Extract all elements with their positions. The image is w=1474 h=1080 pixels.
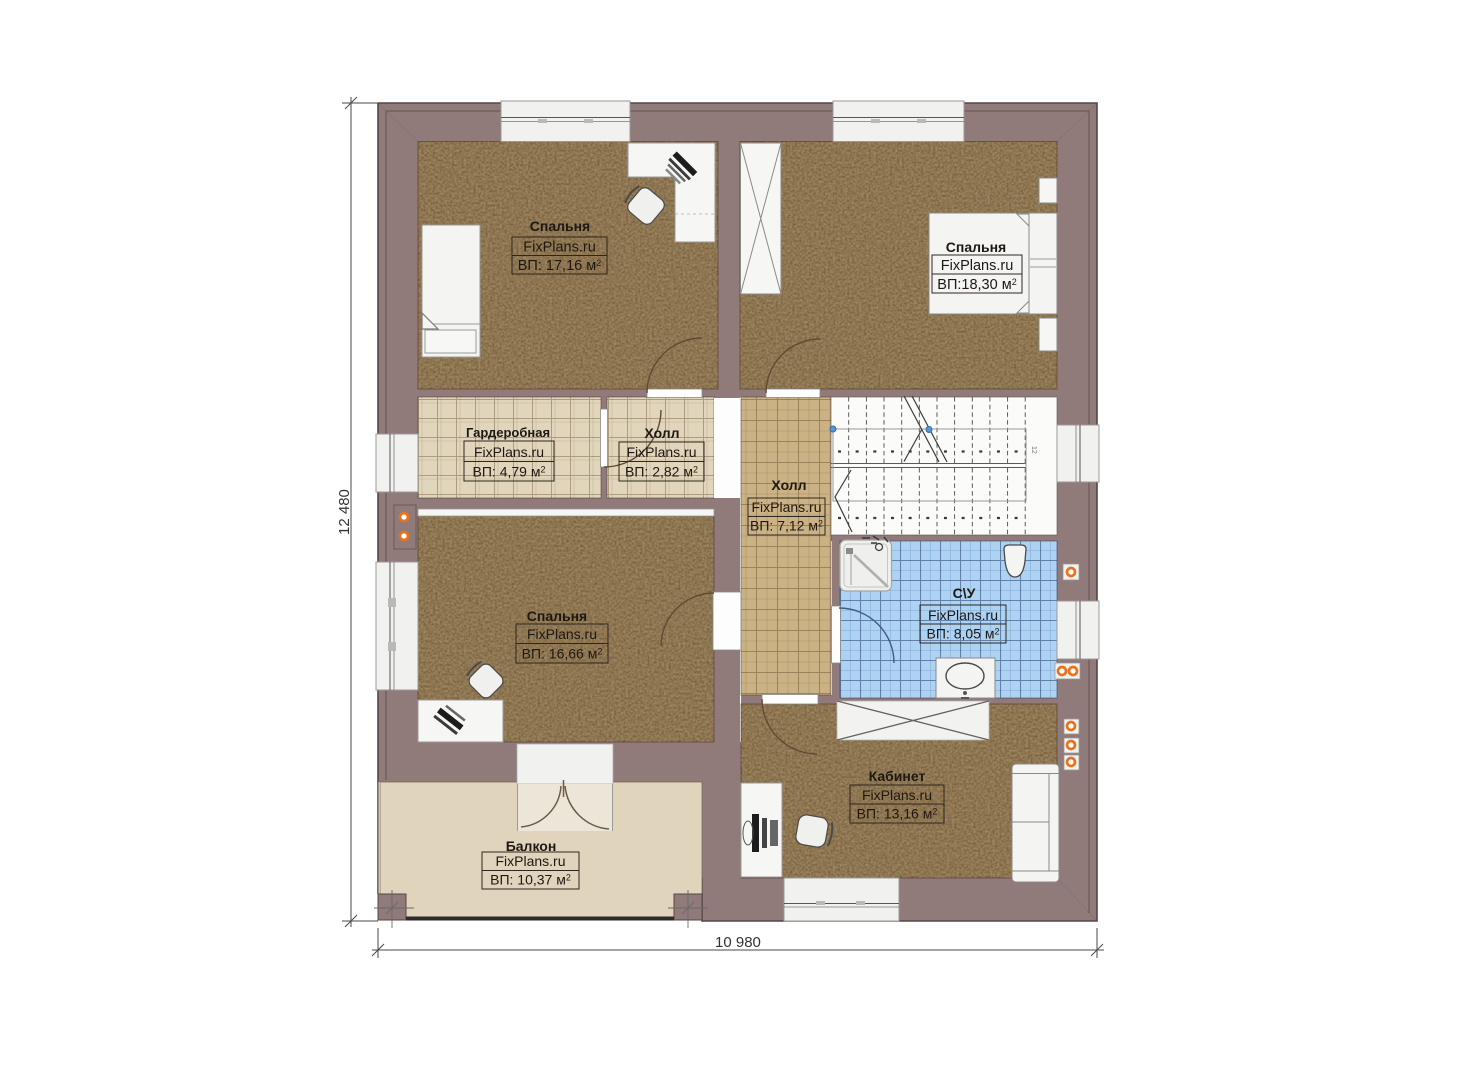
svg-text:С\У: С\У [953, 585, 976, 601]
svg-text:Спальня: Спальня [946, 239, 1006, 255]
svg-text:FixPlans.ru: FixPlans.ru [862, 787, 932, 803]
svg-text:FixPlans.ru: FixPlans.ru [626, 444, 696, 460]
svg-text:Кабинет: Кабинет [869, 768, 926, 784]
svg-text:ВП: 2,82 м2: ВП: 2,82 м2 [625, 464, 698, 480]
svg-text:Холл: Холл [771, 477, 806, 493]
svg-text:FixPlans.ru: FixPlans.ru [751, 499, 821, 515]
svg-text:12 480: 12 480 [336, 489, 353, 535]
svg-text:ВП: 13,16 м2: ВП: 13,16 м2 [857, 806, 938, 822]
svg-text:FixPlans.ru: FixPlans.ru [527, 626, 597, 642]
svg-text:ВП: 17,16 м2: ВП: 17,16 м2 [518, 258, 601, 274]
svg-text:Гардеробная: Гардеробная [466, 425, 550, 440]
svg-text:FixPlans.ru: FixPlans.ru [941, 258, 1014, 274]
svg-text:ВП: 4,79 м2: ВП: 4,79 м2 [473, 464, 546, 480]
svg-text:12: 12 [1030, 446, 1037, 454]
svg-text:Спальня: Спальня [527, 608, 587, 624]
svg-text:FixPlans.ru: FixPlans.ru [928, 607, 998, 623]
svg-text:Холл: Холл [644, 425, 679, 441]
svg-text:FixPlans.ru: FixPlans.ru [474, 444, 544, 460]
svg-text:ВП: 10,37 м2: ВП: 10,37 м2 [490, 872, 571, 888]
svg-text:ВП:18,30 м2: ВП:18,30 м2 [937, 277, 1016, 293]
svg-text:FixPlans.ru: FixPlans.ru [495, 853, 565, 869]
svg-text:FixPlans.ru: FixPlans.ru [523, 240, 596, 256]
svg-text:ВП: 8,05 м2: ВП: 8,05 м2 [927, 626, 1000, 642]
svg-text:ВП: 16,66 м2: ВП: 16,66 м2 [522, 646, 603, 662]
svg-text:10 980: 10 980 [715, 934, 761, 951]
svg-text:Спальня: Спальня [530, 218, 590, 234]
svg-text:ВП: 7,12 м2: ВП: 7,12 м2 [750, 518, 823, 534]
